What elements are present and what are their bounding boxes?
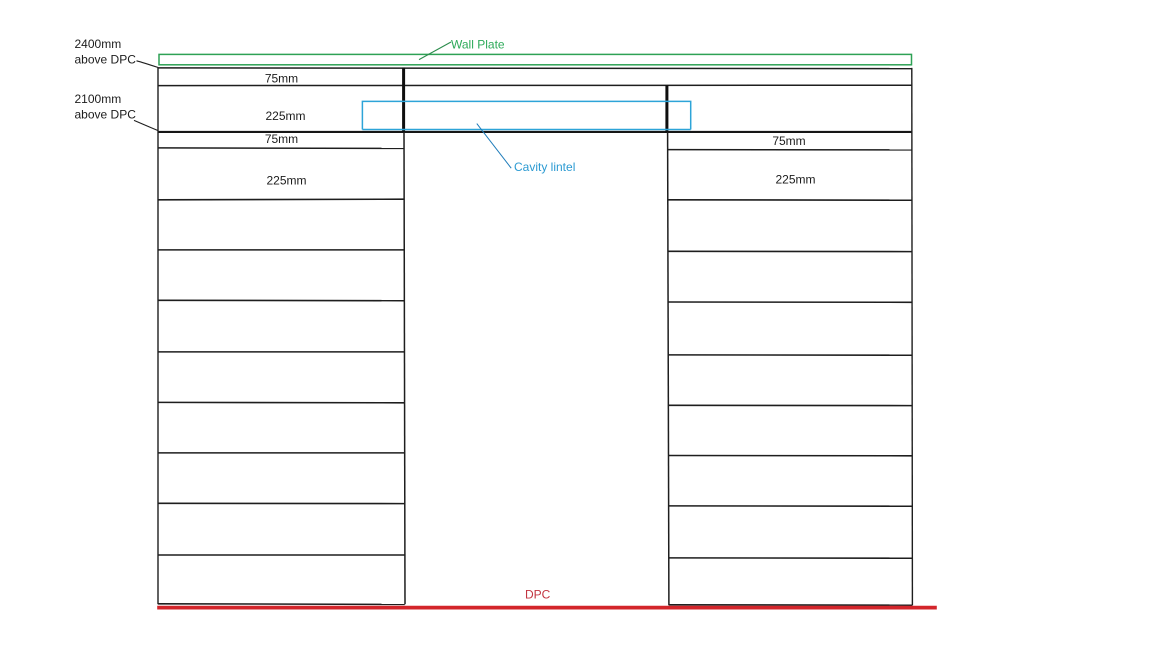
svg-text:75mm: 75mm	[265, 132, 298, 146]
svg-text:2400mm: 2400mm	[75, 37, 122, 51]
svg-text:2100mm: 2100mm	[75, 92, 122, 106]
svg-text:DPC: DPC	[525, 588, 551, 602]
svg-text:75mm: 75mm	[265, 71, 298, 85]
svg-text:75mm: 75mm	[772, 134, 805, 148]
svg-text:Wall Plate: Wall Plate	[451, 38, 505, 52]
svg-text:above DPC: above DPC	[75, 107, 137, 121]
svg-text:225mm: 225mm	[265, 109, 305, 123]
svg-text:225mm: 225mm	[775, 173, 815, 187]
svg-text:225mm: 225mm	[266, 173, 306, 187]
svg-text:above DPC: above DPC	[75, 52, 137, 66]
svg-text:Cavity lintel: Cavity lintel	[514, 160, 575, 174]
